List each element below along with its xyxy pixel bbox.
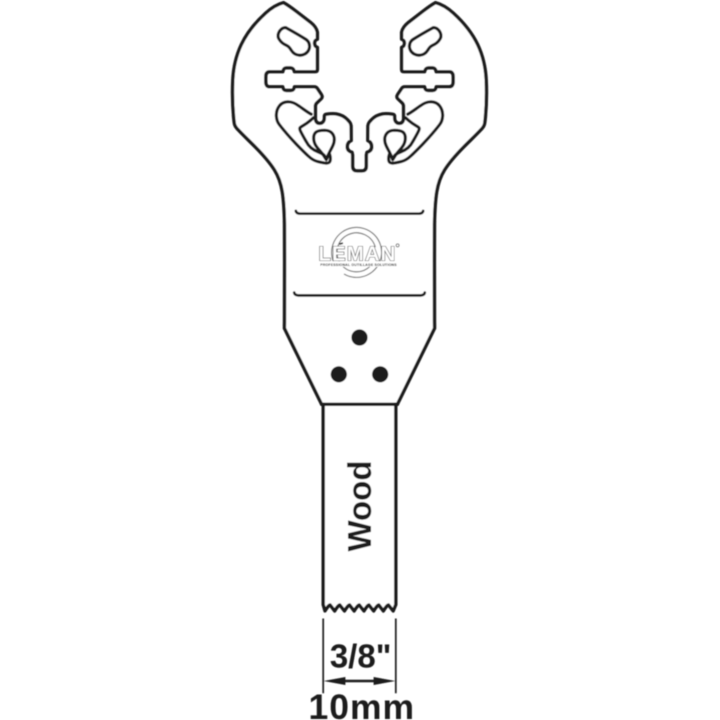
- svg-text:PROFESSIONAL OUTILLAGE SOLUTIO: PROFESSIONAL OUTILLAGE SOLUTIONS: [320, 263, 397, 267]
- svg-text:3/8": 3/8": [330, 638, 392, 675]
- svg-text:10mm: 10mm: [308, 687, 415, 720]
- svg-text:Wood: Wood: [341, 460, 378, 551]
